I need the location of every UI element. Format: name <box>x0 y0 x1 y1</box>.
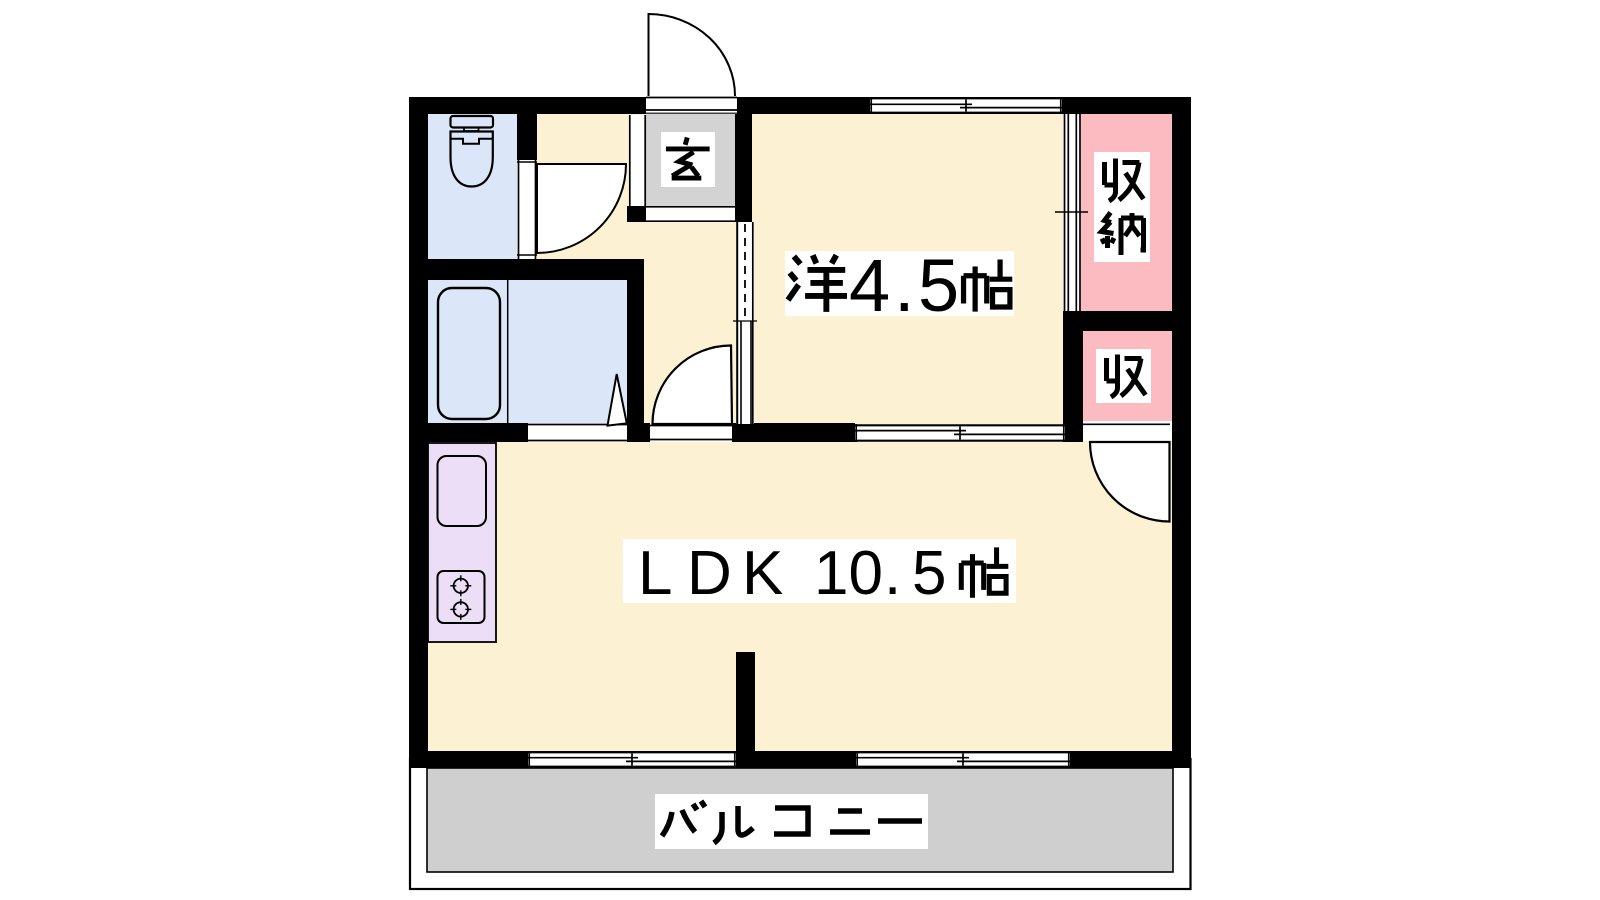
svg-text:D: D <box>687 539 732 608</box>
svg-text:L: L <box>638 539 672 608</box>
svg-text:.: . <box>894 244 915 327</box>
svg-text:10: 10 <box>814 539 883 608</box>
svg-text:4: 4 <box>849 244 890 327</box>
svg-text:.: . <box>884 539 901 608</box>
svg-text:5: 5 <box>912 539 946 608</box>
svg-text:5: 5 <box>918 244 959 327</box>
svg-text:K: K <box>742 539 783 608</box>
